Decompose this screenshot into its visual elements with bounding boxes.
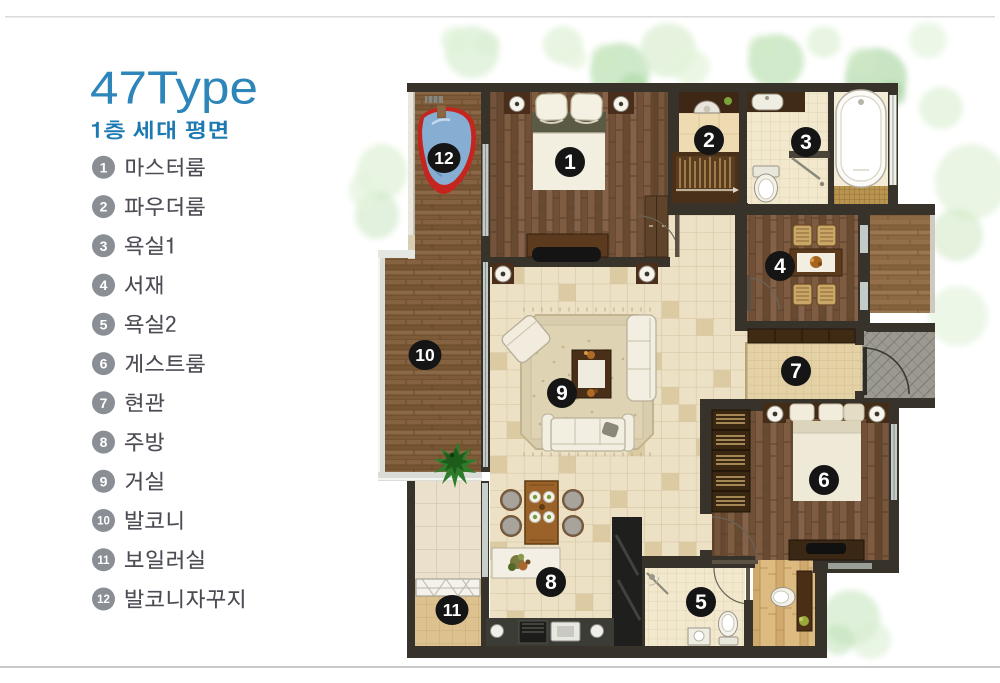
svg-text:8: 8 [100, 434, 108, 450]
svg-text:2: 2 [100, 199, 108, 215]
svg-text:5: 5 [695, 591, 707, 614]
svg-text:12: 12 [434, 148, 454, 168]
svg-text:6: 6 [818, 469, 830, 492]
svg-text:7: 7 [100, 395, 108, 411]
svg-text:2: 2 [703, 129, 715, 152]
svg-text:10: 10 [97, 516, 110, 528]
svg-text:12: 12 [97, 594, 110, 606]
svg-text:8: 8 [545, 571, 557, 594]
svg-text:3: 3 [100, 238, 108, 254]
svg-text:3: 3 [800, 131, 812, 154]
svg-text:10: 10 [415, 345, 435, 365]
svg-text:47Type: 47Type [90, 62, 258, 114]
svg-text:1: 1 [564, 151, 576, 174]
svg-text:6: 6 [100, 356, 108, 372]
svg-text:9: 9 [556, 382, 568, 405]
svg-text:11: 11 [443, 600, 462, 620]
svg-text:4: 4 [774, 255, 786, 278]
svg-text:7: 7 [790, 360, 802, 383]
svg-text:4: 4 [100, 277, 108, 293]
svg-text:11: 11 [97, 555, 110, 567]
svg-text:5: 5 [100, 316, 108, 332]
svg-text:9: 9 [100, 473, 108, 489]
svg-text:1: 1 [100, 159, 108, 175]
